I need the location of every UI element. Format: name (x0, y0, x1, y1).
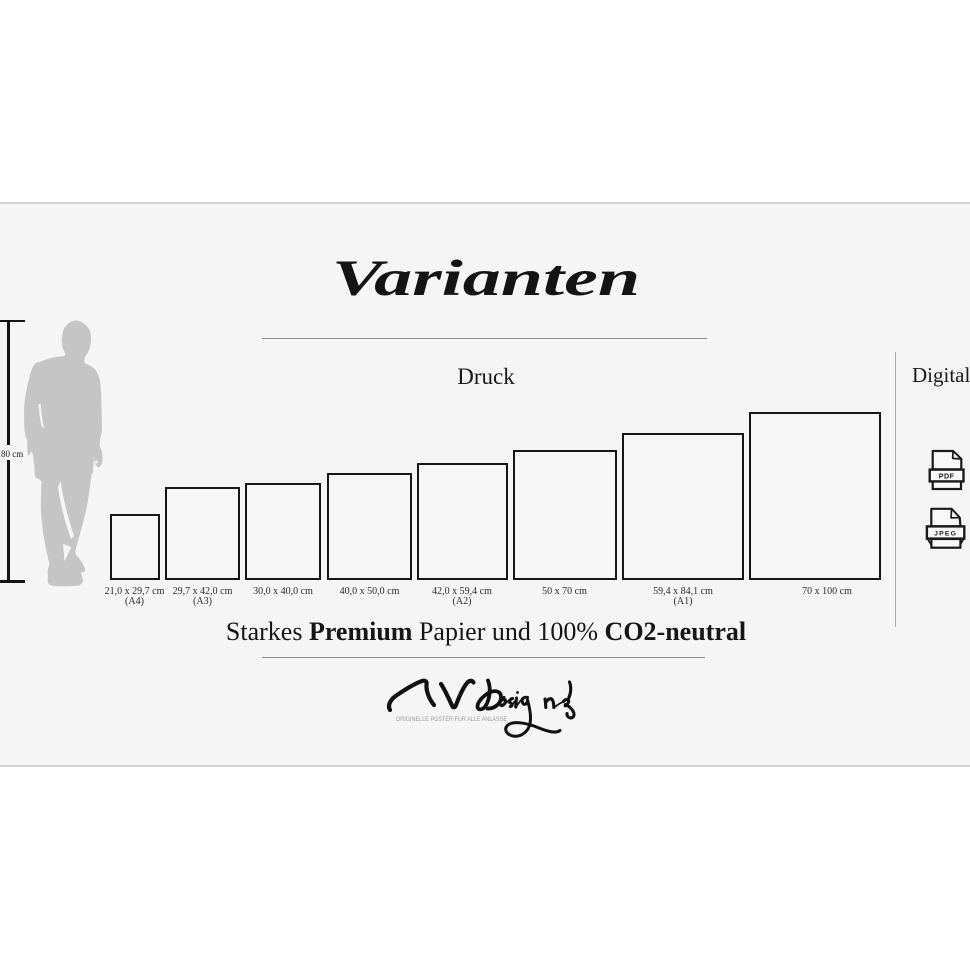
svg-text:PDF: PDF (939, 472, 955, 481)
svg-text:JPEG: JPEG (934, 531, 957, 538)
